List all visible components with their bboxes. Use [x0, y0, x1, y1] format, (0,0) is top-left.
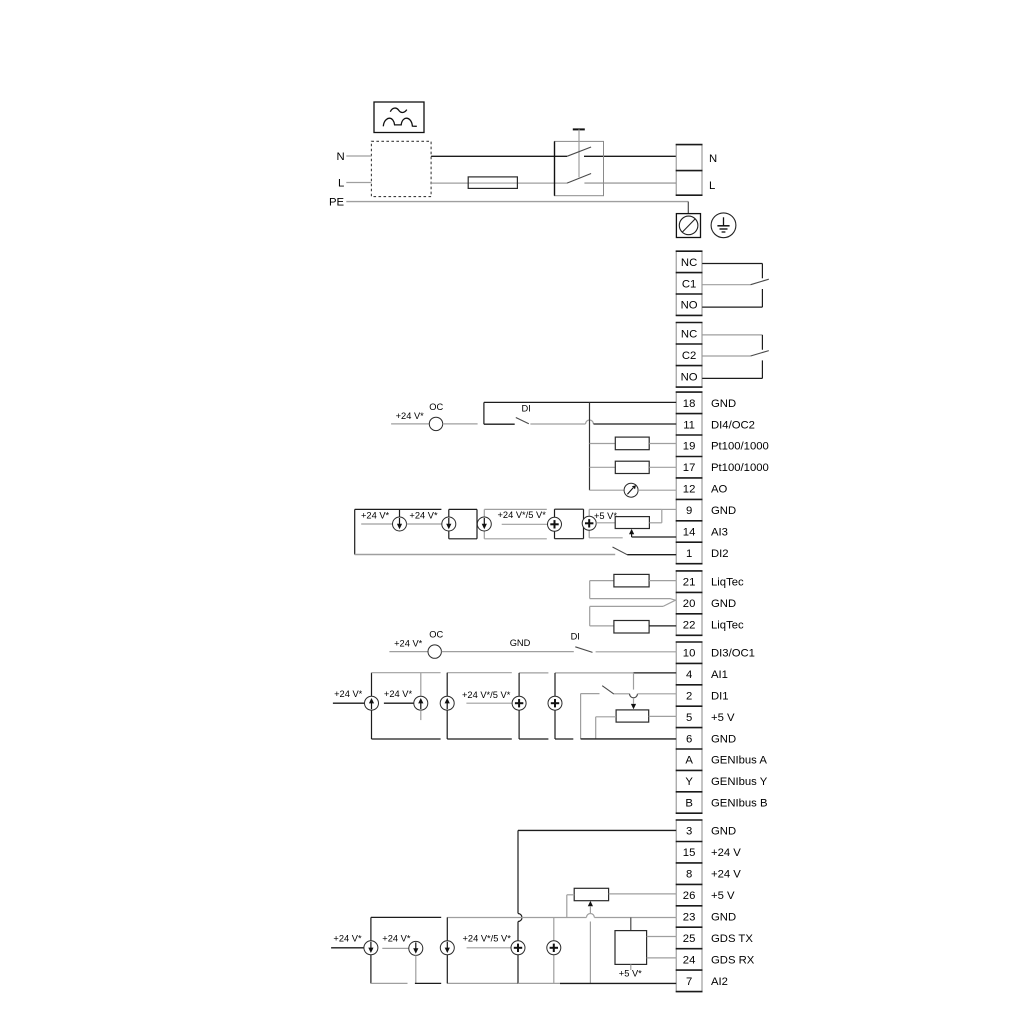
svg-text:20: 20: [683, 598, 696, 610]
svg-text:GENIbus Y: GENIbus Y: [711, 776, 768, 788]
svg-text:6: 6: [686, 733, 692, 745]
svg-text:+5 V*: +5 V*: [619, 968, 642, 978]
svg-text:DI: DI: [522, 403, 531, 413]
svg-text:LiqTec: LiqTec: [711, 620, 744, 632]
svg-text:Pt100/1000: Pt100/1000: [711, 441, 769, 453]
svg-text:GND: GND: [711, 912, 736, 924]
svg-text:24: 24: [683, 954, 696, 966]
svg-text:+24 V*: +24 V*: [396, 411, 425, 421]
svg-text:2: 2: [686, 691, 692, 703]
svg-text:+24 V*: +24 V*: [384, 689, 413, 699]
svg-text:DI2: DI2: [711, 548, 729, 560]
svg-text:14: 14: [683, 527, 696, 539]
svg-text:+24 V*: +24 V*: [334, 689, 363, 699]
svg-text:+24 V*: +24 V*: [333, 933, 362, 943]
svg-text:+5 V: +5 V: [711, 890, 735, 902]
svg-text:8: 8: [686, 869, 692, 881]
svg-text:GENIbus B: GENIbus B: [711, 798, 768, 810]
svg-text:NO: NO: [681, 300, 698, 312]
svg-text:26: 26: [683, 890, 696, 902]
svg-text:GDS TX: GDS TX: [711, 933, 753, 945]
svg-text:Pt100/1000: Pt100/1000: [711, 462, 769, 474]
svg-text:C1: C1: [682, 278, 696, 290]
svg-text:GND: GND: [711, 826, 736, 838]
svg-text:+24 V*: +24 V*: [409, 511, 438, 521]
svg-text:PE: PE: [329, 197, 345, 209]
svg-text:+24 V: +24 V: [711, 847, 741, 859]
svg-text:A: A: [685, 755, 693, 767]
svg-text:+24 V*: +24 V*: [361, 511, 390, 521]
svg-text:L: L: [338, 178, 344, 190]
svg-text:GND: GND: [711, 505, 736, 517]
svg-text:GND: GND: [711, 733, 736, 745]
svg-text:Y: Y: [685, 776, 693, 788]
svg-text:NC: NC: [681, 328, 697, 340]
svg-text:GND: GND: [711, 598, 736, 610]
svg-text:+24 V: +24 V: [711, 869, 741, 881]
svg-text:3: 3: [686, 826, 692, 838]
svg-text:LiqTec: LiqTec: [711, 577, 744, 589]
svg-text:+24 V*: +24 V*: [382, 933, 411, 943]
svg-text:L: L: [709, 180, 715, 192]
svg-text:AI3: AI3: [711, 527, 728, 539]
svg-text:AI2: AI2: [711, 976, 728, 988]
svg-text:DI4/OC2: DI4/OC2: [711, 419, 755, 431]
svg-text:DI3/OC1: DI3/OC1: [711, 648, 755, 660]
svg-text:+24 V*/5 V*: +24 V*/5 V*: [462, 690, 511, 700]
svg-text:GND: GND: [711, 398, 736, 410]
svg-text:GENIbus A: GENIbus A: [711, 755, 767, 767]
svg-text:GND: GND: [510, 638, 531, 648]
svg-text:5: 5: [686, 712, 692, 724]
svg-text:NC: NC: [681, 257, 697, 269]
svg-text:23: 23: [683, 912, 696, 924]
svg-text:+5 V: +5 V: [711, 712, 735, 724]
svg-text:N: N: [709, 153, 717, 165]
svg-text:C2: C2: [682, 350, 696, 362]
svg-text:9: 9: [686, 505, 692, 517]
svg-text:10: 10: [683, 648, 696, 660]
svg-text:+24 V*: +24 V*: [394, 638, 423, 648]
svg-text:21: 21: [683, 577, 696, 589]
svg-text:22: 22: [683, 620, 696, 632]
svg-text:+5 V*: +5 V*: [594, 511, 617, 521]
svg-text:7: 7: [686, 976, 692, 988]
svg-text:18: 18: [683, 398, 696, 410]
svg-text:25: 25: [683, 933, 696, 945]
svg-text:DI1: DI1: [711, 691, 729, 703]
svg-text:DI: DI: [571, 632, 580, 642]
svg-text:OC: OC: [429, 402, 443, 412]
svg-text:OC: OC: [429, 629, 443, 639]
svg-text:AO: AO: [711, 484, 728, 496]
svg-text:+24 V*/5 V*: +24 V*/5 V*: [498, 510, 547, 520]
svg-text:17: 17: [683, 462, 696, 474]
svg-text:NO: NO: [681, 371, 698, 383]
svg-text:19: 19: [683, 441, 696, 453]
svg-text:12: 12: [683, 484, 696, 496]
svg-text:B: B: [685, 798, 693, 810]
svg-text:1: 1: [686, 548, 692, 560]
svg-text:11: 11: [683, 419, 695, 431]
svg-text:N: N: [337, 151, 345, 163]
svg-text:+24 V*/5 V*: +24 V*/5 V*: [463, 933, 512, 943]
svg-text:15: 15: [683, 847, 696, 859]
svg-text:4: 4: [686, 669, 692, 681]
svg-text:AI1: AI1: [711, 669, 728, 681]
svg-text:GDS RX: GDS RX: [711, 954, 755, 966]
